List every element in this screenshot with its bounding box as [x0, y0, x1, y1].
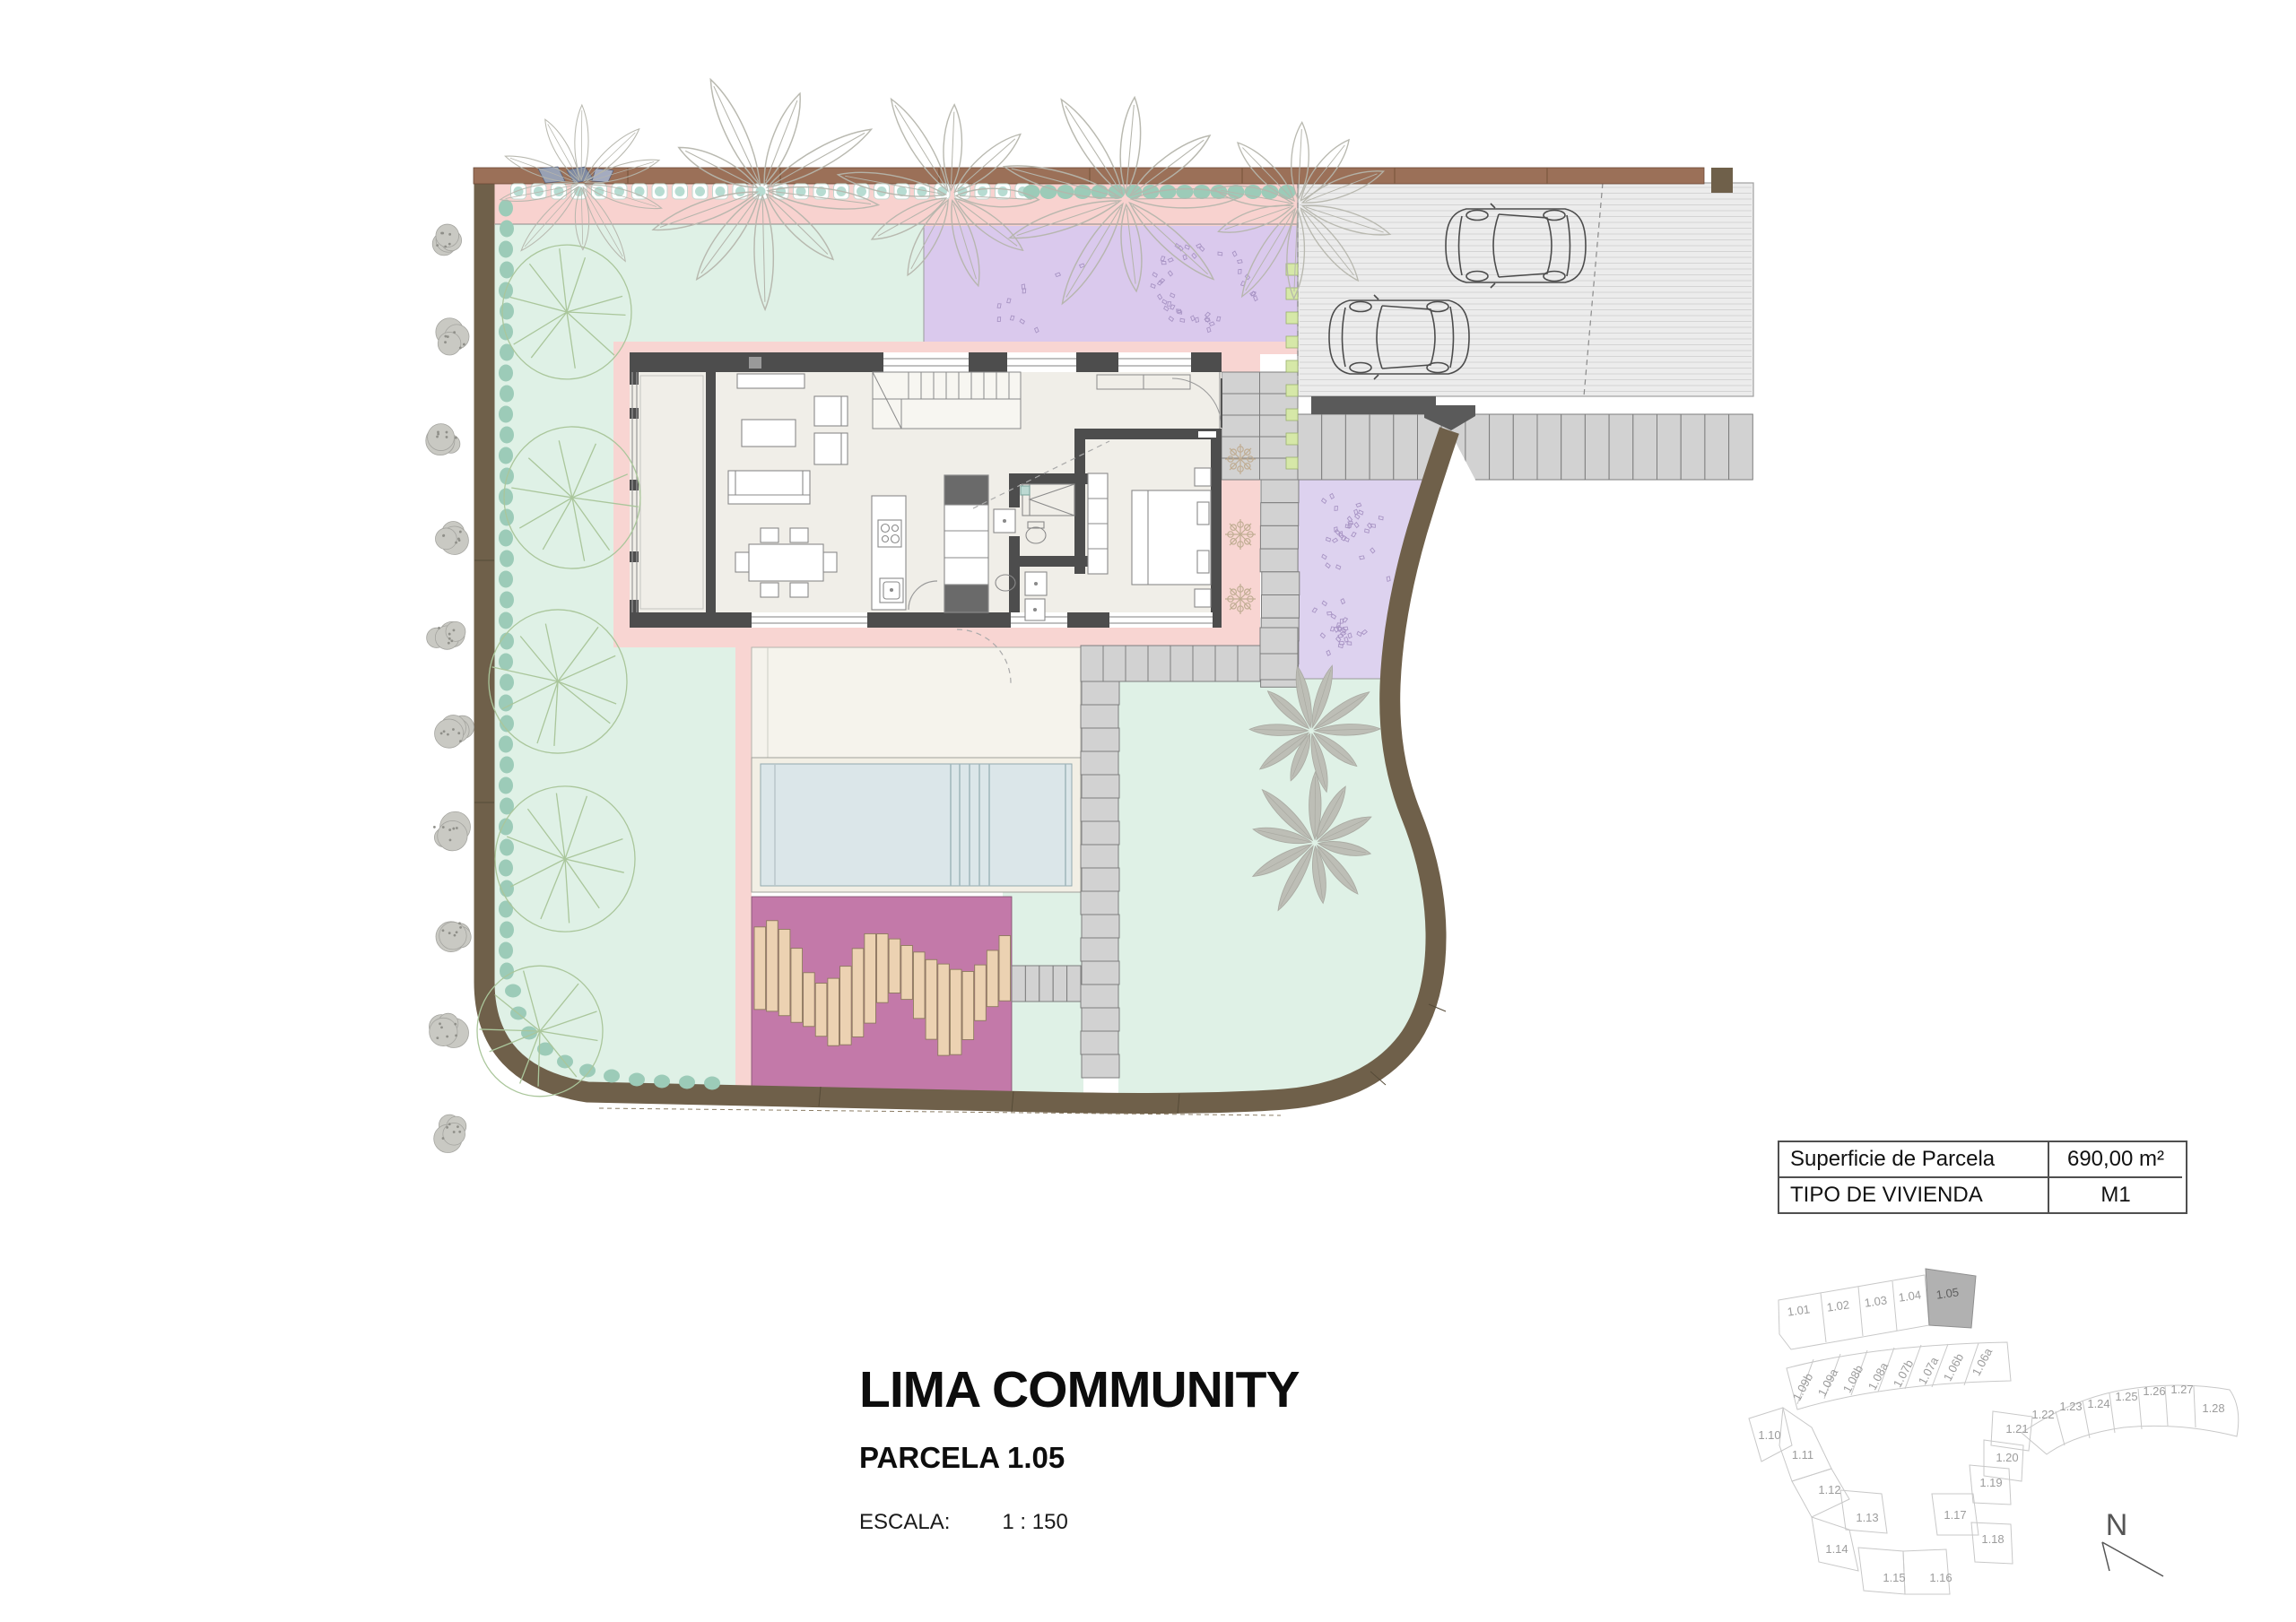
- north-label: N: [2106, 1508, 2128, 1542]
- paver: [1633, 414, 1657, 480]
- table-row-value: M1: [2048, 1178, 2182, 1212]
- gray-wall-segment: [1311, 396, 1436, 414]
- paver: [1262, 572, 1300, 595]
- paver: [1322, 414, 1346, 480]
- keyplan-parcel-label: 1.06a: [1970, 1345, 1996, 1377]
- paver: [1260, 654, 1298, 680]
- table-row-value: 690,00 m²: [2048, 1142, 2182, 1178]
- paver: [1081, 984, 1118, 1008]
- shrub-icon: [435, 716, 474, 749]
- paver: [1561, 414, 1586, 480]
- plank: [962, 971, 974, 1039]
- paver: [1170, 646, 1193, 681]
- keyplan-parcel-label: 1.20: [1996, 1451, 2018, 1464]
- plank: [938, 964, 950, 1055]
- shrub-icon: [432, 224, 461, 256]
- paver: [1082, 1008, 1119, 1031]
- shrub-icon: [435, 522, 468, 555]
- paver: [1081, 646, 1103, 681]
- keyplan-parcel-label: 1.28: [2202, 1401, 2224, 1415]
- table-row-label: Superficie de Parcela: [1779, 1142, 2048, 1178]
- plank: [791, 949, 803, 1023]
- paver: [1585, 414, 1609, 480]
- plank: [852, 949, 864, 1037]
- paver: [1222, 372, 1260, 394]
- paver: [1081, 1031, 1118, 1054]
- shrub-icon: [426, 424, 460, 455]
- paver: [1394, 414, 1418, 480]
- plant-icon: [1225, 444, 1256, 474]
- pool-water: [761, 764, 1072, 886]
- scale-line: ESCALA:1 : 150: [859, 1512, 1299, 1533]
- keyplan-parcel-label: 1.09b: [1790, 1371, 1816, 1403]
- paver: [1082, 1054, 1119, 1078]
- paver: [1081, 845, 1118, 868]
- keyplan-parcel-label: 1.14: [1825, 1542, 1848, 1556]
- keyplan-parcel-label: 1.23: [2059, 1400, 2082, 1413]
- scale-label: ESCALA:: [859, 1510, 950, 1534]
- paver: [1082, 868, 1119, 891]
- keyplan-parcel-label: 1.26: [2143, 1384, 2165, 1398]
- paver: [1126, 646, 1148, 681]
- plank: [913, 952, 925, 1019]
- plank: [950, 969, 961, 1054]
- paver: [1490, 414, 1514, 480]
- paver: [1081, 891, 1118, 915]
- paver: [1215, 646, 1238, 681]
- paver: [1081, 798, 1118, 821]
- keyplan-parcel-label: 1.01: [1787, 1302, 1811, 1318]
- plank: [815, 984, 827, 1037]
- shrub-icon: [427, 621, 465, 649]
- keyplan-parcel-label: 1.19: [1979, 1476, 2002, 1489]
- paver: [1082, 821, 1119, 845]
- shrub-icon: [433, 811, 470, 851]
- plant-icon: [1225, 584, 1256, 614]
- paver: [1082, 775, 1119, 798]
- plank: [999, 936, 1011, 1002]
- keyplan-parcel-label: 1.17: [1944, 1508, 1966, 1522]
- keyplan-parcel-label: 1.10: [1758, 1428, 1780, 1442]
- paver: [1370, 414, 1394, 480]
- plank: [778, 929, 790, 1015]
- north-arrow: N: [2102, 1508, 2163, 1576]
- parking-area: [1298, 183, 1753, 396]
- paver: [1012, 966, 1025, 1002]
- info-table: Superficie de Parcela 690,00 m² TIPO DE …: [1778, 1141, 2187, 1214]
- keyplan-parcel-label: 1.02: [1826, 1297, 1850, 1314]
- paver: [1261, 503, 1299, 526]
- plank: [987, 950, 998, 1007]
- paver: [1238, 646, 1260, 681]
- keyplan-parcel-label: 1.27: [2170, 1383, 2193, 1396]
- paver: [1262, 595, 1300, 619]
- stairs: [873, 372, 1021, 429]
- plank: [926, 959, 937, 1039]
- paver: [1082, 961, 1119, 984]
- key-plan: 1.011.021.031.041.051.09b1.09a1.08b1.08a…: [1749, 1269, 2239, 1594]
- keyplan-parcel-label: 1.07b: [1891, 1357, 1917, 1390]
- paver: [1193, 646, 1215, 681]
- paver: [1039, 966, 1053, 1002]
- plank: [840, 967, 852, 1045]
- paver: [1082, 915, 1119, 938]
- paver: [1298, 414, 1322, 480]
- paver: [1081, 705, 1118, 728]
- title-block: LIMA COMMUNITY PARCELA 1.05 ESCALA:1 : 1…: [859, 1365, 1299, 1533]
- bed: [1132, 490, 1211, 585]
- drawing-sheet: 1.011.021.031.041.051.09b1.09a1.08b1.08a…: [0, 0, 2296, 1622]
- paver: [1345, 414, 1370, 480]
- keyplan-parcel-label: 1.25: [2115, 1390, 2137, 1403]
- paver: [1657, 414, 1682, 480]
- keyplan-parcel-label: 1.08b: [1840, 1363, 1866, 1395]
- page-title: LIMA COMMUNITY: [859, 1365, 1299, 1416]
- plank: [889, 939, 900, 993]
- parcel-subtitle: PARCELA 1.05: [859, 1443, 1299, 1472]
- paver: [1082, 681, 1119, 705]
- paver: [1729, 414, 1753, 480]
- scale-value: 1 : 150: [1002, 1510, 1067, 1534]
- shrub-icon: [436, 318, 469, 355]
- keyplan-parcel-label: 1.15: [1883, 1571, 1905, 1584]
- paver: [1222, 415, 1260, 437]
- paver: [1705, 414, 1729, 480]
- keyplan-parcel-label: 1.12: [1818, 1483, 1840, 1496]
- paver: [1260, 628, 1298, 654]
- keyplan-parcel-label: 1.22: [2031, 1408, 2054, 1421]
- plank: [804, 973, 815, 1027]
- keyplan-parcel-label: 1.08a: [1865, 1359, 1892, 1392]
- plant-icon: [1225, 519, 1256, 550]
- keyplan-parcel-label: 1.07a: [1916, 1354, 1942, 1386]
- paver: [1513, 414, 1537, 480]
- keyplan-parcel-label: 1.09a: [1815, 1366, 1841, 1398]
- paver: [1148, 646, 1170, 681]
- paver: [1609, 414, 1633, 480]
- paver: [1260, 549, 1298, 572]
- keyplan-parcel-label: 1.18: [1981, 1532, 2004, 1546]
- paver: [1053, 966, 1066, 1002]
- keyplan-parcel-label: 1.11: [1792, 1448, 1813, 1462]
- site-plan: [426, 53, 1973, 1309]
- keyplan-parcel-label: 1.16: [1929, 1571, 1952, 1584]
- plank: [828, 978, 839, 1045]
- wall-post: [1711, 168, 1733, 193]
- paver: [1681, 414, 1705, 480]
- keyplan-parcel-label: 1.13: [1856, 1511, 1878, 1524]
- table-row-label: TIPO DE VIVIENDA: [1779, 1178, 2048, 1212]
- terrace: [752, 647, 1081, 758]
- plank: [877, 934, 889, 1003]
- keyplan-parcel-label: 1.24: [2087, 1397, 2109, 1410]
- pool: [752, 758, 1081, 892]
- paver: [1261, 480, 1299, 503]
- plank: [975, 965, 987, 1020]
- plank: [754, 927, 766, 1010]
- plank: [901, 946, 913, 1000]
- plank: [767, 921, 778, 1011]
- paver: [1081, 751, 1118, 775]
- shrub-icon: [436, 922, 471, 952]
- keyplan-parcel-label: 1.06b: [1941, 1351, 1967, 1383]
- paver: [1103, 646, 1126, 681]
- paver: [1067, 966, 1081, 1002]
- paver: [1222, 394, 1260, 415]
- paver: [1025, 966, 1039, 1002]
- paver: [1537, 414, 1561, 480]
- plank: [865, 933, 876, 1023]
- paver: [1081, 938, 1118, 961]
- paver: [1082, 728, 1119, 751]
- paver: [1260, 525, 1298, 549]
- keyplan-parcel-label: 1.21: [2005, 1422, 2028, 1436]
